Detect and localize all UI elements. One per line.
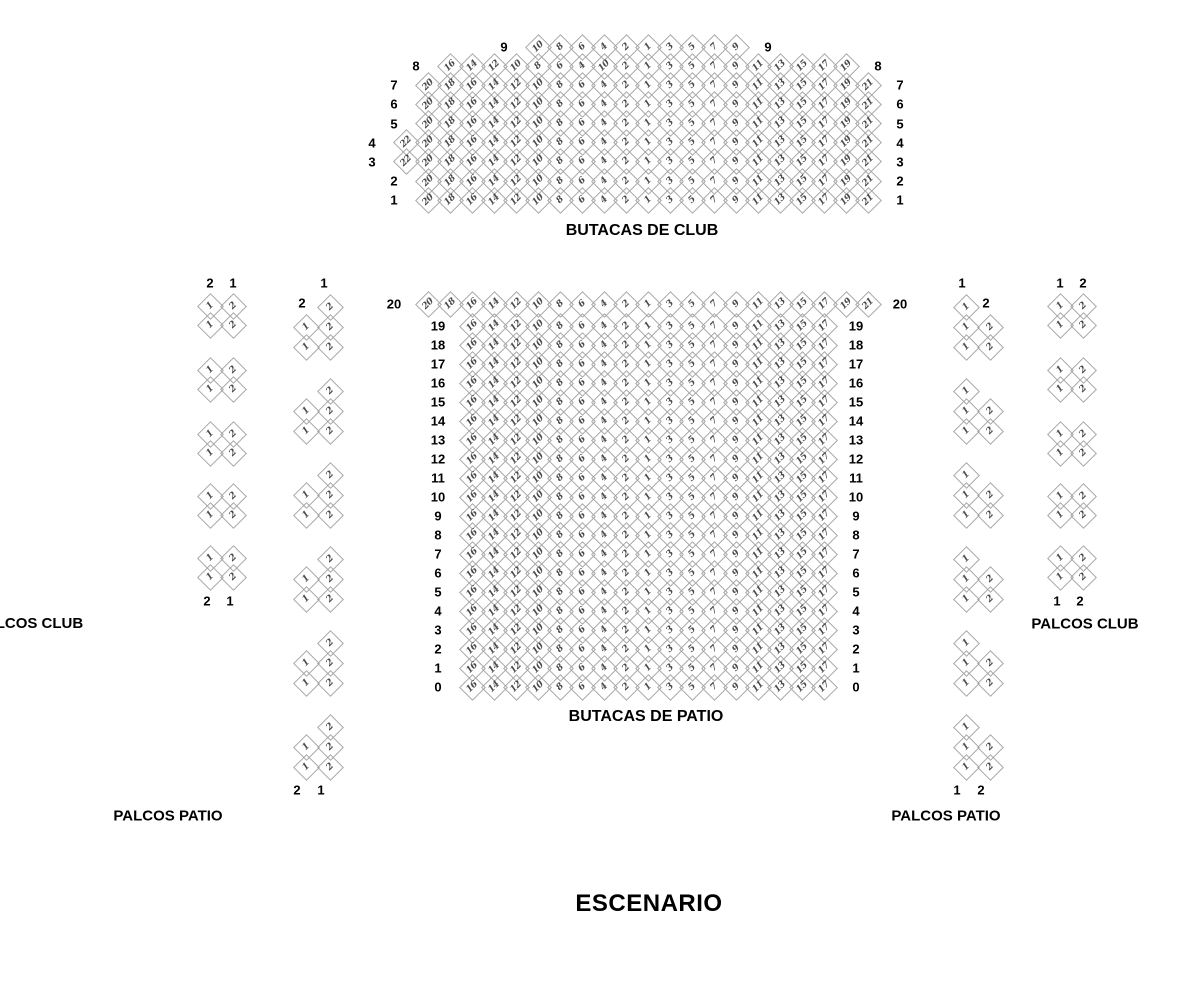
seat-number: 6 bbox=[577, 80, 587, 90]
seat-number: 8 bbox=[555, 359, 565, 369]
seat-number: 2 bbox=[621, 473, 631, 483]
row-label: 3 bbox=[434, 624, 441, 637]
seat-number: 8 bbox=[555, 195, 565, 205]
row-label: 17 bbox=[849, 358, 863, 371]
seat-number: 1 bbox=[961, 386, 971, 396]
seat-number: 8 bbox=[555, 321, 565, 331]
palcos-club-right-label: PALCOS CLUB bbox=[1031, 617, 1138, 632]
seat[interactable]: 1 bbox=[293, 586, 320, 613]
seat-number: 1 bbox=[301, 406, 311, 416]
seat-number: 6 bbox=[577, 195, 587, 205]
seat-number: 2 bbox=[621, 138, 631, 148]
seat-number: 19 bbox=[839, 297, 854, 312]
seat-number: 1 bbox=[1055, 553, 1065, 563]
row-label: 3 bbox=[852, 624, 859, 637]
row-label: 18 bbox=[849, 339, 863, 352]
seat-number: 2 bbox=[325, 490, 335, 500]
seat-number: 1 bbox=[961, 638, 971, 648]
seat-number: 9 bbox=[731, 606, 741, 616]
seat-number: 1 bbox=[1055, 301, 1065, 311]
seat-number: 4 bbox=[599, 663, 609, 673]
seat[interactable]: 1 bbox=[953, 670, 980, 697]
seat-number: 8 bbox=[555, 682, 565, 692]
seat-number: 6 bbox=[577, 587, 587, 597]
row-label: 1 bbox=[434, 662, 441, 675]
seat-number: 21 bbox=[861, 193, 876, 208]
seat[interactable]: 2 bbox=[1070, 312, 1097, 339]
seat-number: 6 bbox=[577, 157, 587, 167]
seat-number: 9 bbox=[731, 99, 741, 109]
seat-number: 8 bbox=[555, 530, 565, 540]
seat-number: 2 bbox=[325, 594, 335, 604]
seat-number: 3 bbox=[665, 321, 675, 331]
seat[interactable]: 2 bbox=[317, 670, 344, 697]
seat-number: 4 bbox=[599, 625, 609, 635]
seat-number: 12 bbox=[509, 193, 524, 208]
seat-number: 9 bbox=[731, 80, 741, 90]
seat-number: 5 bbox=[687, 378, 697, 388]
seat-number: 2 bbox=[985, 574, 995, 584]
seat-number: 2 bbox=[1078, 553, 1088, 563]
row-label: 12 bbox=[431, 453, 445, 466]
seat-number: 7 bbox=[709, 340, 719, 350]
seat-number: 1 bbox=[961, 490, 971, 500]
seat-number: 8 bbox=[555, 625, 565, 635]
seat-number: 7 bbox=[709, 663, 719, 673]
seat[interactable]: 1 bbox=[293, 334, 320, 361]
seat-number: 4 bbox=[599, 299, 609, 309]
row-label: 9 bbox=[434, 510, 441, 523]
seat-number: 1 bbox=[301, 742, 311, 752]
seat-number: 1 bbox=[643, 625, 653, 635]
row-label: 13 bbox=[849, 434, 863, 447]
seat-number: 1 bbox=[1055, 429, 1065, 439]
seat-number: 1 bbox=[961, 302, 971, 312]
seat-number: 2 bbox=[621, 321, 631, 331]
seat[interactable]: 1 bbox=[293, 754, 320, 781]
seat-number: 9 bbox=[731, 473, 741, 483]
seat-number: 2 bbox=[985, 426, 995, 436]
seat-number: 8 bbox=[555, 138, 565, 148]
seat-number: 2 bbox=[985, 406, 995, 416]
row-label: 7 bbox=[896, 79, 903, 92]
seat-number: 7 bbox=[709, 378, 719, 388]
seat-number: 3 bbox=[665, 378, 675, 388]
seat-number: 2 bbox=[228, 320, 238, 330]
seat-number: 2 bbox=[325, 386, 335, 396]
seat-number: 2 bbox=[621, 42, 631, 52]
seat-number: 7 bbox=[709, 511, 719, 521]
seat-number: 1 bbox=[205, 365, 215, 375]
seat-number: 4 bbox=[577, 61, 587, 71]
palco-column-label: 2 bbox=[1076, 595, 1083, 608]
seat-number: 5 bbox=[687, 157, 697, 167]
seat-number: 2 bbox=[1078, 510, 1088, 520]
seat-number: 7 bbox=[709, 359, 719, 369]
seat-number: 3 bbox=[665, 606, 675, 616]
seat-number: 2 bbox=[1078, 448, 1088, 458]
row-label: 19 bbox=[431, 320, 445, 333]
seat-number: 10 bbox=[531, 680, 546, 695]
seat-number: 12 bbox=[509, 680, 524, 695]
seat-number: 10 bbox=[531, 193, 546, 208]
seat-number: 5 bbox=[687, 454, 697, 464]
seat-number: 2 bbox=[1078, 320, 1088, 330]
seat-number: 1 bbox=[643, 299, 653, 309]
seat-number: 6 bbox=[577, 644, 587, 654]
row-label: 12 bbox=[849, 453, 863, 466]
seat-number: 2 bbox=[228, 365, 238, 375]
palco-column-label: 2 bbox=[977, 784, 984, 797]
seat-number: 1 bbox=[643, 80, 653, 90]
seat[interactable]: 2 bbox=[977, 754, 1004, 781]
seat-number: 2 bbox=[1078, 384, 1088, 394]
seat[interactable]: 2 bbox=[317, 418, 344, 445]
seat-number: 8 bbox=[555, 157, 565, 167]
row-label: 7 bbox=[434, 548, 441, 561]
seat-number: 2 bbox=[621, 682, 631, 692]
seat-number: 1 bbox=[961, 594, 971, 604]
seat-number: 1 bbox=[643, 454, 653, 464]
seat-number: 2 bbox=[325, 342, 335, 352]
seat-number: 7 bbox=[709, 157, 719, 167]
seat[interactable]: 21 bbox=[855, 291, 882, 318]
row-label: 6 bbox=[390, 98, 397, 111]
seat-number: 2 bbox=[985, 678, 995, 688]
seat-number: 2 bbox=[621, 416, 631, 426]
seat-number: 1 bbox=[643, 321, 653, 331]
seat-number: 4 bbox=[599, 157, 609, 167]
row-label: 7 bbox=[390, 79, 397, 92]
seat-number: 5 bbox=[687, 42, 697, 52]
seat-number: 7 bbox=[709, 176, 719, 186]
seat-number: 1 bbox=[961, 742, 971, 752]
seat-number: 6 bbox=[577, 435, 587, 445]
seat-number: 5 bbox=[687, 397, 697, 407]
seat[interactable]: 2 bbox=[317, 586, 344, 613]
seat-number: 2 bbox=[228, 301, 238, 311]
palco-column-label: 2 bbox=[982, 297, 989, 310]
palco-column-label: 1 bbox=[958, 277, 965, 290]
row-label: 15 bbox=[849, 396, 863, 409]
seat-number: 6 bbox=[577, 397, 587, 407]
seat-number: 7 bbox=[709, 606, 719, 616]
row-label: 16 bbox=[431, 377, 445, 390]
seat-number: 1 bbox=[1055, 384, 1065, 394]
row-label: 8 bbox=[412, 60, 419, 73]
seat[interactable]: 2 bbox=[317, 334, 344, 361]
seat-number: 2 bbox=[228, 553, 238, 563]
seat-number: 8 bbox=[555, 473, 565, 483]
seat-number: 1 bbox=[301, 342, 311, 352]
seat-number: 8 bbox=[555, 118, 565, 128]
seat-number: 7 bbox=[709, 625, 719, 635]
seat-number: 1 bbox=[961, 342, 971, 352]
seat-number: 4 bbox=[599, 416, 609, 426]
seat-number: 5 bbox=[687, 118, 697, 128]
row-label: 3 bbox=[368, 155, 375, 168]
seat[interactable]: 2 bbox=[220, 440, 247, 467]
seat[interactable]: 2 bbox=[977, 334, 1004, 361]
seat-number: 1 bbox=[643, 378, 653, 388]
seat[interactable]: 2 bbox=[977, 586, 1004, 613]
seat[interactable]: 1 bbox=[953, 334, 980, 361]
seat[interactable]: 2 bbox=[1070, 564, 1097, 591]
row-label: 9 bbox=[500, 41, 507, 54]
seat-number: 1 bbox=[205, 553, 215, 563]
row-label: 9 bbox=[852, 510, 859, 523]
seat-number: 1 bbox=[643, 530, 653, 540]
seat-number: 1 bbox=[643, 157, 653, 167]
seat-number: 1 bbox=[961, 406, 971, 416]
seat-number: 5 bbox=[687, 321, 697, 331]
seat-number: 1 bbox=[205, 491, 215, 501]
seat-number: 2 bbox=[621, 378, 631, 388]
seat-number: 16 bbox=[465, 680, 480, 695]
seat-number: 1 bbox=[643, 195, 653, 205]
seat-number: 2 bbox=[228, 510, 238, 520]
seat-number: 9 bbox=[731, 663, 741, 673]
seat-number: 2 bbox=[325, 510, 335, 520]
seat[interactable]: 1 bbox=[293, 670, 320, 697]
seat-number: 1 bbox=[301, 510, 311, 520]
row-label: 4 bbox=[852, 605, 859, 618]
butacas-patio-label: BUTACAS DE PATIO bbox=[569, 709, 724, 725]
seat-number: 2 bbox=[621, 644, 631, 654]
row-label: 18 bbox=[431, 339, 445, 352]
seat-number: 5 bbox=[687, 99, 697, 109]
seat-number: 2 bbox=[621, 530, 631, 540]
seat[interactable]: 2 bbox=[977, 502, 1004, 529]
seat-number: 7 bbox=[709, 321, 719, 331]
seat-number: 9 bbox=[731, 340, 741, 350]
seat[interactable]: 21 bbox=[855, 187, 882, 214]
seat-number: 7 bbox=[709, 587, 719, 597]
seat-number: 1 bbox=[301, 594, 311, 604]
seat-number: 9 bbox=[731, 195, 741, 205]
seat-number: 2 bbox=[621, 397, 631, 407]
seat-number: 8 bbox=[555, 492, 565, 502]
seat-number: 1 bbox=[643, 99, 653, 109]
seat-number: 17 bbox=[817, 297, 832, 312]
seat-number: 2 bbox=[621, 625, 631, 635]
seat-number: 1 bbox=[301, 490, 311, 500]
seat-number: 4 bbox=[599, 606, 609, 616]
seat[interactable]: 2 bbox=[220, 564, 247, 591]
seat-number: 3 bbox=[665, 359, 675, 369]
seat[interactable]: 2 bbox=[220, 502, 247, 529]
seat-number: 3 bbox=[665, 625, 675, 635]
seat[interactable]: 2 bbox=[220, 376, 247, 403]
seat-number: 8 bbox=[555, 549, 565, 559]
seat[interactable]: 2 bbox=[1070, 502, 1097, 529]
palco-column-label: 2 bbox=[206, 277, 213, 290]
seat-number: 7 bbox=[709, 549, 719, 559]
seat-number: 4 bbox=[599, 644, 609, 654]
seat-number: 7 bbox=[709, 435, 719, 445]
row-label: 1 bbox=[852, 662, 859, 675]
seat-number: 4 bbox=[599, 340, 609, 350]
seat-number: 6 bbox=[577, 549, 587, 559]
seat-number: 4 bbox=[599, 511, 609, 521]
seat-number: 2 bbox=[325, 638, 335, 648]
seat-number: 1 bbox=[1055, 320, 1065, 330]
row-label: 8 bbox=[874, 60, 881, 73]
seat-number: 3 bbox=[665, 118, 675, 128]
seat-number: 3 bbox=[665, 682, 675, 692]
seat-number: 4 bbox=[599, 378, 609, 388]
row-label: 19 bbox=[849, 320, 863, 333]
seat-number: 1 bbox=[301, 762, 311, 772]
seat-number: 4 bbox=[599, 321, 609, 331]
seat-number: 3 bbox=[665, 138, 675, 148]
seat-number: 8 bbox=[555, 416, 565, 426]
seat-number: 6 bbox=[577, 663, 587, 673]
seat[interactable]: 1 bbox=[293, 418, 320, 445]
seat-number: 3 bbox=[665, 473, 675, 483]
seat-number: 8 bbox=[555, 644, 565, 654]
seat-number: 11 bbox=[751, 193, 766, 208]
seat-number: 8 bbox=[555, 587, 565, 597]
seat-number: 7 bbox=[709, 454, 719, 464]
row-label: 2 bbox=[852, 643, 859, 656]
seat-number: 21 bbox=[861, 297, 876, 312]
seat-number: 3 bbox=[665, 397, 675, 407]
seat-number: 8 bbox=[555, 397, 565, 407]
seat-number: 1 bbox=[205, 320, 215, 330]
seat-number: 11 bbox=[751, 297, 766, 312]
seat-number: 1 bbox=[205, 384, 215, 394]
seat-number: 1 bbox=[643, 663, 653, 673]
seat-number: 6 bbox=[577, 530, 587, 540]
seat-number: 7 bbox=[709, 195, 719, 205]
seat-number: 7 bbox=[709, 644, 719, 654]
seat-number: 1 bbox=[643, 644, 653, 654]
seat-number: 2 bbox=[621, 80, 631, 90]
row-label: 20 bbox=[387, 298, 401, 311]
seat[interactable]: 1 bbox=[953, 502, 980, 529]
seat-number: 17 bbox=[817, 193, 832, 208]
row-label: 4 bbox=[368, 136, 375, 149]
seat-number: 2 bbox=[621, 454, 631, 464]
palcos-patio-left-label: PALCOS PATIO bbox=[113, 809, 222, 824]
seat-number: 2 bbox=[621, 663, 631, 673]
seat-number: 6 bbox=[577, 454, 587, 464]
seat-number: 1 bbox=[961, 658, 971, 668]
seat-number: 1 bbox=[643, 435, 653, 445]
seat-number: 9 bbox=[731, 359, 741, 369]
seat-number: 2 bbox=[621, 549, 631, 559]
seat-number: 4 bbox=[599, 118, 609, 128]
seat-number: 1 bbox=[961, 554, 971, 564]
seat-number: 4 bbox=[599, 195, 609, 205]
seat-number: 2 bbox=[1078, 491, 1088, 501]
seat-number: 12 bbox=[509, 297, 524, 312]
seat-number: 18 bbox=[443, 193, 458, 208]
seat-number: 1 bbox=[643, 397, 653, 407]
seat-number: 2 bbox=[228, 384, 238, 394]
seat[interactable]: 2 bbox=[220, 312, 247, 339]
seat-number: 7 bbox=[709, 138, 719, 148]
row-label: 6 bbox=[852, 567, 859, 580]
palco-column-label: 2 bbox=[293, 784, 300, 797]
seat-number: 1 bbox=[205, 301, 215, 311]
seating-map: BUTACAS DE CLUB BUTACAS DE PATIO PALCOS … bbox=[0, 0, 1200, 1000]
seat-number: 8 bbox=[555, 454, 565, 464]
seat-number: 1 bbox=[1055, 491, 1065, 501]
seat-number: 2 bbox=[228, 491, 238, 501]
seat-number: 5 bbox=[687, 549, 697, 559]
seat-number: 6 bbox=[577, 492, 587, 502]
seat-number: 2 bbox=[621, 587, 631, 597]
row-label: 1 bbox=[390, 194, 397, 207]
seat[interactable]: 2 bbox=[977, 670, 1004, 697]
seat-number: 5 bbox=[687, 138, 697, 148]
seat[interactable]: 17 bbox=[811, 674, 838, 701]
seat-number: 5 bbox=[687, 492, 697, 502]
seat-number: 6 bbox=[577, 299, 587, 309]
seat-number: 11 bbox=[751, 680, 766, 695]
seat-number: 9 bbox=[731, 511, 741, 521]
seat[interactable]: 1 bbox=[293, 502, 320, 529]
seat-number: 7 bbox=[709, 42, 719, 52]
seat-number: 3 bbox=[665, 61, 675, 71]
seat-number: 9 bbox=[731, 644, 741, 654]
row-label: 8 bbox=[434, 529, 441, 542]
row-label: 10 bbox=[431, 491, 445, 504]
seat-number: 3 bbox=[665, 454, 675, 464]
palco-column-label: 1 bbox=[1053, 595, 1060, 608]
seat-number: 4 bbox=[599, 568, 609, 578]
row-label: 5 bbox=[896, 117, 903, 130]
seat-number: 6 bbox=[577, 99, 587, 109]
seat-number: 13 bbox=[773, 680, 788, 695]
seat-number: 1 bbox=[643, 549, 653, 559]
seat-number: 7 bbox=[709, 299, 719, 309]
seat-number: 1 bbox=[961, 510, 971, 520]
seat-number: 9 bbox=[731, 587, 741, 597]
seat[interactable]: 2 bbox=[317, 754, 344, 781]
seat-number: 3 bbox=[665, 99, 675, 109]
seat[interactable]: 1 bbox=[953, 418, 980, 445]
seat[interactable]: 2 bbox=[1070, 440, 1097, 467]
seat[interactable]: 1 bbox=[953, 586, 980, 613]
seat-number: 7 bbox=[709, 61, 719, 71]
row-label: 6 bbox=[434, 567, 441, 580]
seat-number: 2 bbox=[621, 195, 631, 205]
seat-number: 6 bbox=[577, 176, 587, 186]
seat-number: 1 bbox=[961, 678, 971, 688]
seat[interactable]: 1 bbox=[953, 754, 980, 781]
seat-number: 16 bbox=[465, 297, 480, 312]
seat-number: 9 bbox=[731, 42, 741, 52]
seat-number: 1 bbox=[961, 722, 971, 732]
seat-number: 4 bbox=[599, 473, 609, 483]
seat-number: 8 bbox=[555, 299, 565, 309]
seat[interactable]: 2 bbox=[1070, 376, 1097, 403]
seat-number: 6 bbox=[577, 118, 587, 128]
seat[interactable]: 2 bbox=[317, 502, 344, 529]
seat-number: 2 bbox=[621, 176, 631, 186]
palco-column-label: 1 bbox=[229, 277, 236, 290]
seat-number: 5 bbox=[687, 663, 697, 673]
seat-number: 9 bbox=[731, 682, 741, 692]
seat[interactable]: 2 bbox=[977, 418, 1004, 445]
seat-number: 6 bbox=[555, 61, 565, 71]
row-label: 4 bbox=[896, 136, 903, 149]
seat-number: 8 bbox=[555, 435, 565, 445]
row-label: 5 bbox=[390, 117, 397, 130]
